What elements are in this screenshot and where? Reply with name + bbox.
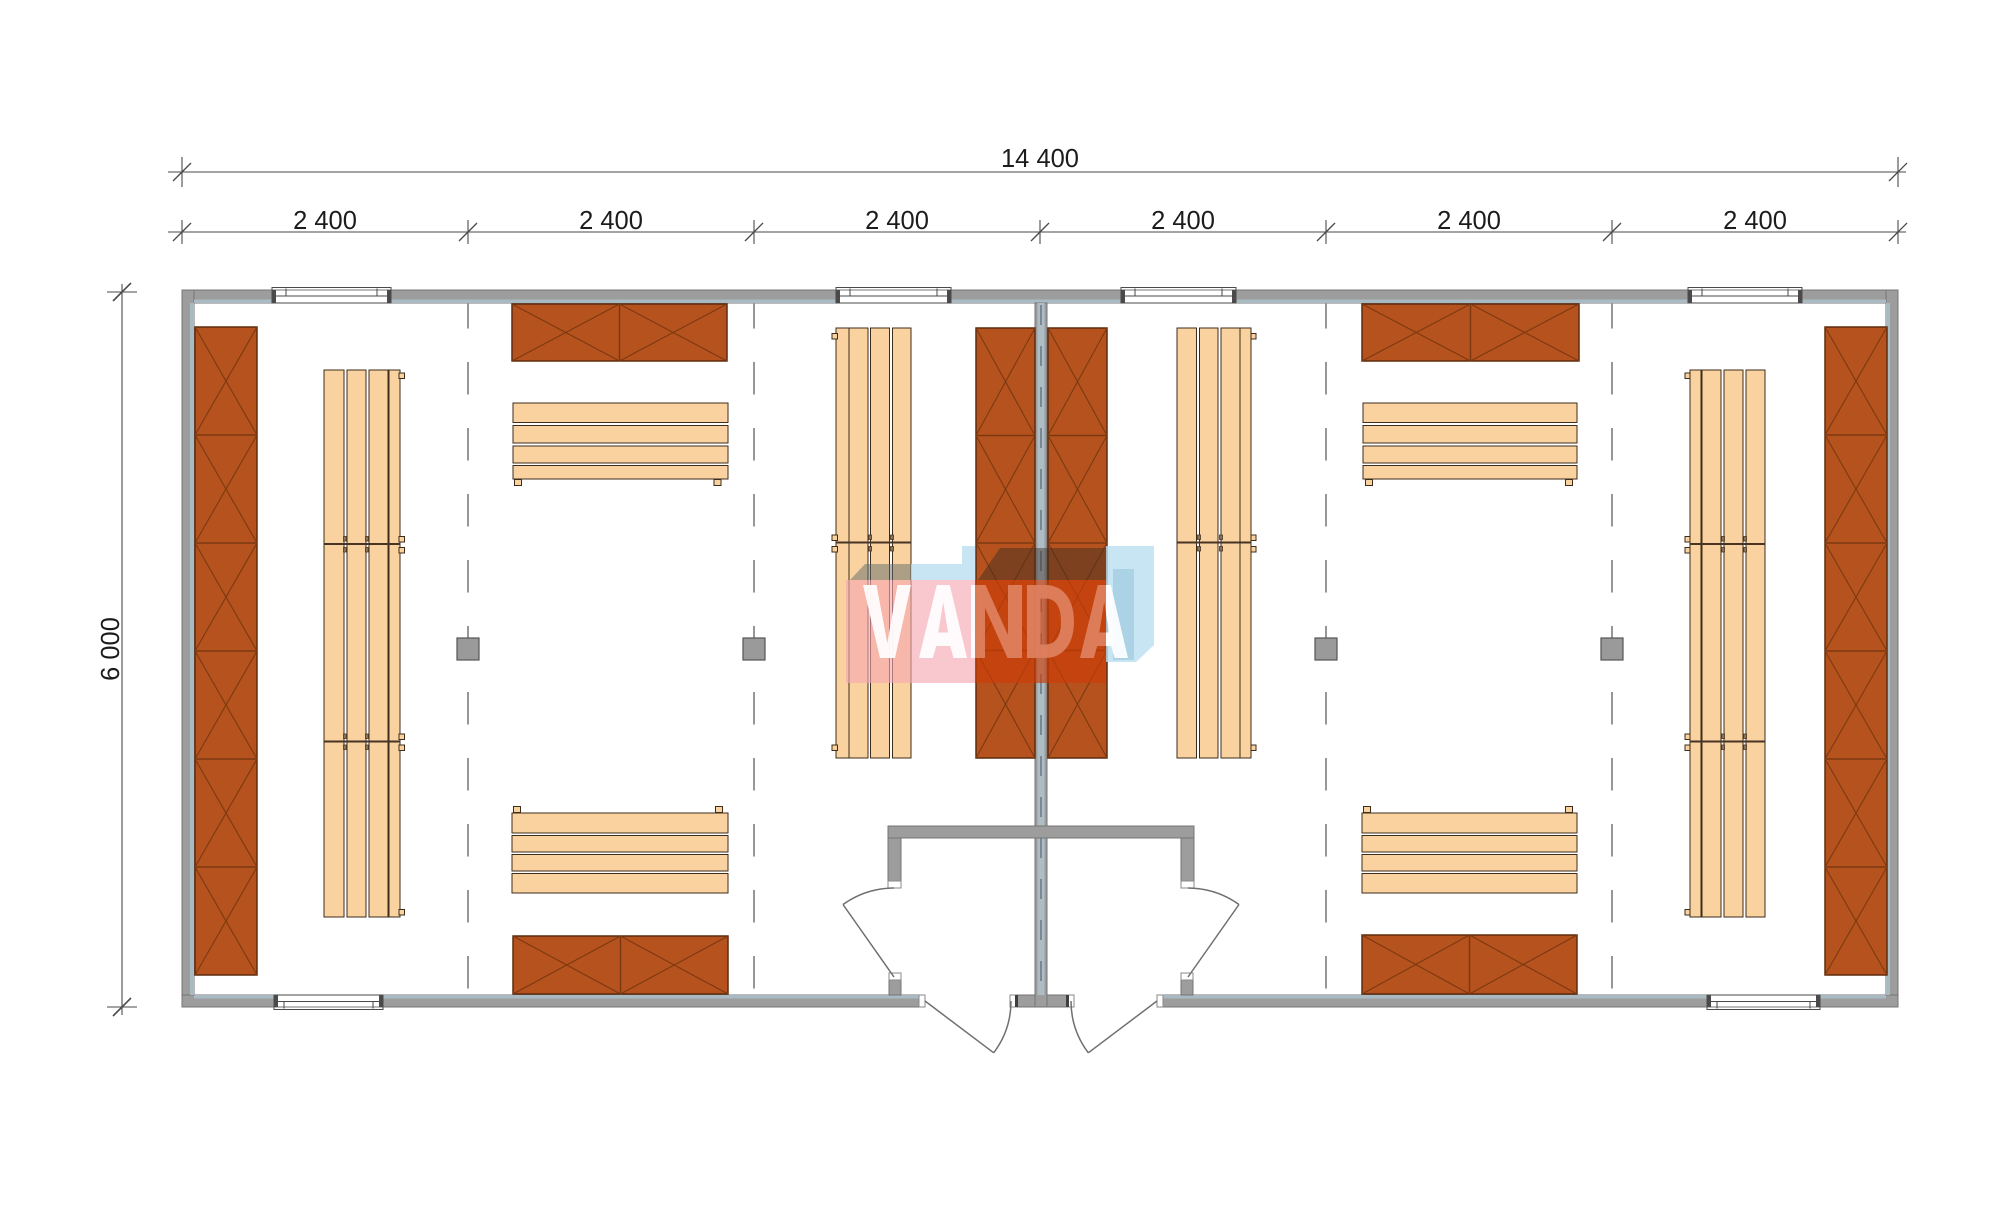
svg-text:2 400: 2 400 — [1151, 207, 1215, 235]
svg-text:2 400: 2 400 — [1723, 207, 1787, 235]
svg-text:2 400: 2 400 — [865, 207, 929, 235]
svg-text:14 400: 14 400 — [1001, 145, 1079, 173]
svg-text:6 000: 6 000 — [97, 617, 125, 681]
svg-text:2 400: 2 400 — [579, 207, 643, 235]
svg-text:2 400: 2 400 — [293, 207, 357, 235]
svg-text:2 400: 2 400 — [1437, 207, 1501, 235]
